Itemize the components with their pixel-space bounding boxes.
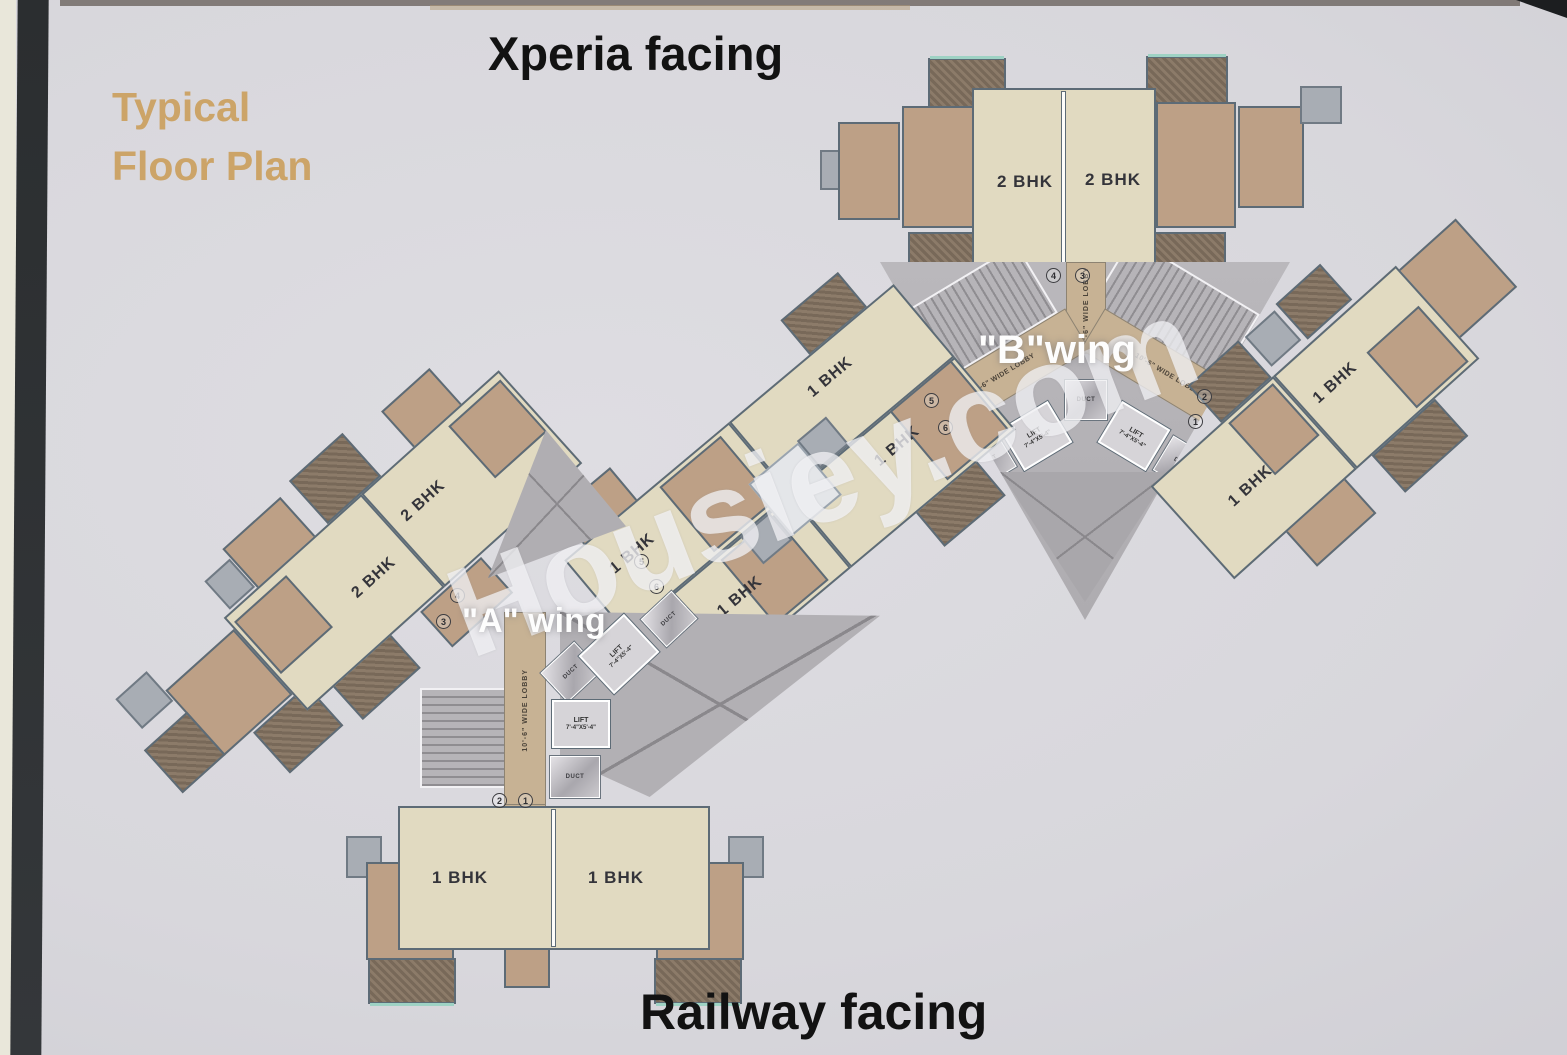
flat-number: 4 [1046, 268, 1061, 283]
photo-corner-black-topright [1516, 0, 1567, 18]
plan-title-line2: Floor Plan [112, 137, 312, 196]
duct-label: DUCT [660, 610, 678, 627]
plan-title: Typical Floor Plan [112, 78, 312, 197]
a-south-balcony-left [368, 958, 456, 1004]
a-south-unit1-label: 1 BHK [432, 868, 488, 888]
wing-b-label: "B"wing [978, 328, 1136, 373]
flat-number: 4 [450, 588, 465, 603]
flat-number: 1 [518, 793, 533, 808]
b-top-unit1-label: 2 BHK [997, 172, 1053, 192]
photo-edge-top-tan [430, 5, 910, 10]
floor-plan-photo: Typical Floor Plan Xperia facing Railway… [0, 0, 1567, 1055]
b-top-room-right [1156, 102, 1236, 228]
a-core-stairs [420, 688, 508, 788]
flat-number: 3 [1075, 268, 1090, 283]
b-top-slab-right [1300, 86, 1342, 124]
b-top-balcony-right [1146, 56, 1228, 106]
b-top-room-farleft [838, 122, 900, 220]
a-core-lift-main: LIFT 7'-4"X5'-4" [552, 700, 610, 748]
flat-number: 3 [436, 614, 451, 629]
a-south-unit-divider [552, 810, 555, 946]
flat-number: 5 [924, 393, 939, 408]
photo-edge-black-left [10, 0, 48, 1055]
plan-title-line1: Typical [112, 78, 312, 137]
flat-number: 6 [938, 420, 953, 435]
wing-a-label: "A" wing [462, 602, 606, 641]
duct-label: DUCT [1077, 397, 1096, 403]
a-south-unit2-label: 1 BHK [588, 868, 644, 888]
flat-number: 2 [492, 793, 507, 808]
bottom-facing-label: Railway facing [640, 983, 987, 1041]
b-top-window-left [930, 56, 1004, 59]
duct-label: DUCT [562, 663, 580, 680]
b-top-unit-divider [1062, 92, 1065, 266]
a-arm-slab-tip [115, 671, 173, 729]
lift-label: LIFT [574, 717, 589, 725]
a-south-window-left [370, 1003, 454, 1006]
flat-number: 6 [649, 579, 664, 594]
b-top-unit2-label: 2 BHK [1085, 170, 1141, 190]
a-south-center-room [504, 948, 550, 988]
b-top-window-right [1148, 54, 1226, 57]
flat-number: 2 [1197, 389, 1212, 404]
a-core-duct3: DUCT [550, 756, 600, 798]
a-core-lobby: 10'-6" WIDE LOBBY [504, 612, 546, 808]
flat-number: 1 [1188, 414, 1203, 429]
lift-size-label: 7'-4"X5'-4" [566, 725, 596, 732]
duct-label: DUCT [566, 774, 585, 780]
flat-number: 5 [634, 554, 649, 569]
a-core-lobby-label: 10'-6" WIDE LOBBY [522, 669, 529, 752]
b-core-lower-triangle [1000, 472, 1170, 602]
top-facing-label: Xperia facing [488, 26, 783, 81]
b-top-room-farright [1238, 106, 1304, 208]
b-top-room-left [902, 106, 980, 228]
b-core-duct-center: DUCT [1065, 380, 1107, 420]
